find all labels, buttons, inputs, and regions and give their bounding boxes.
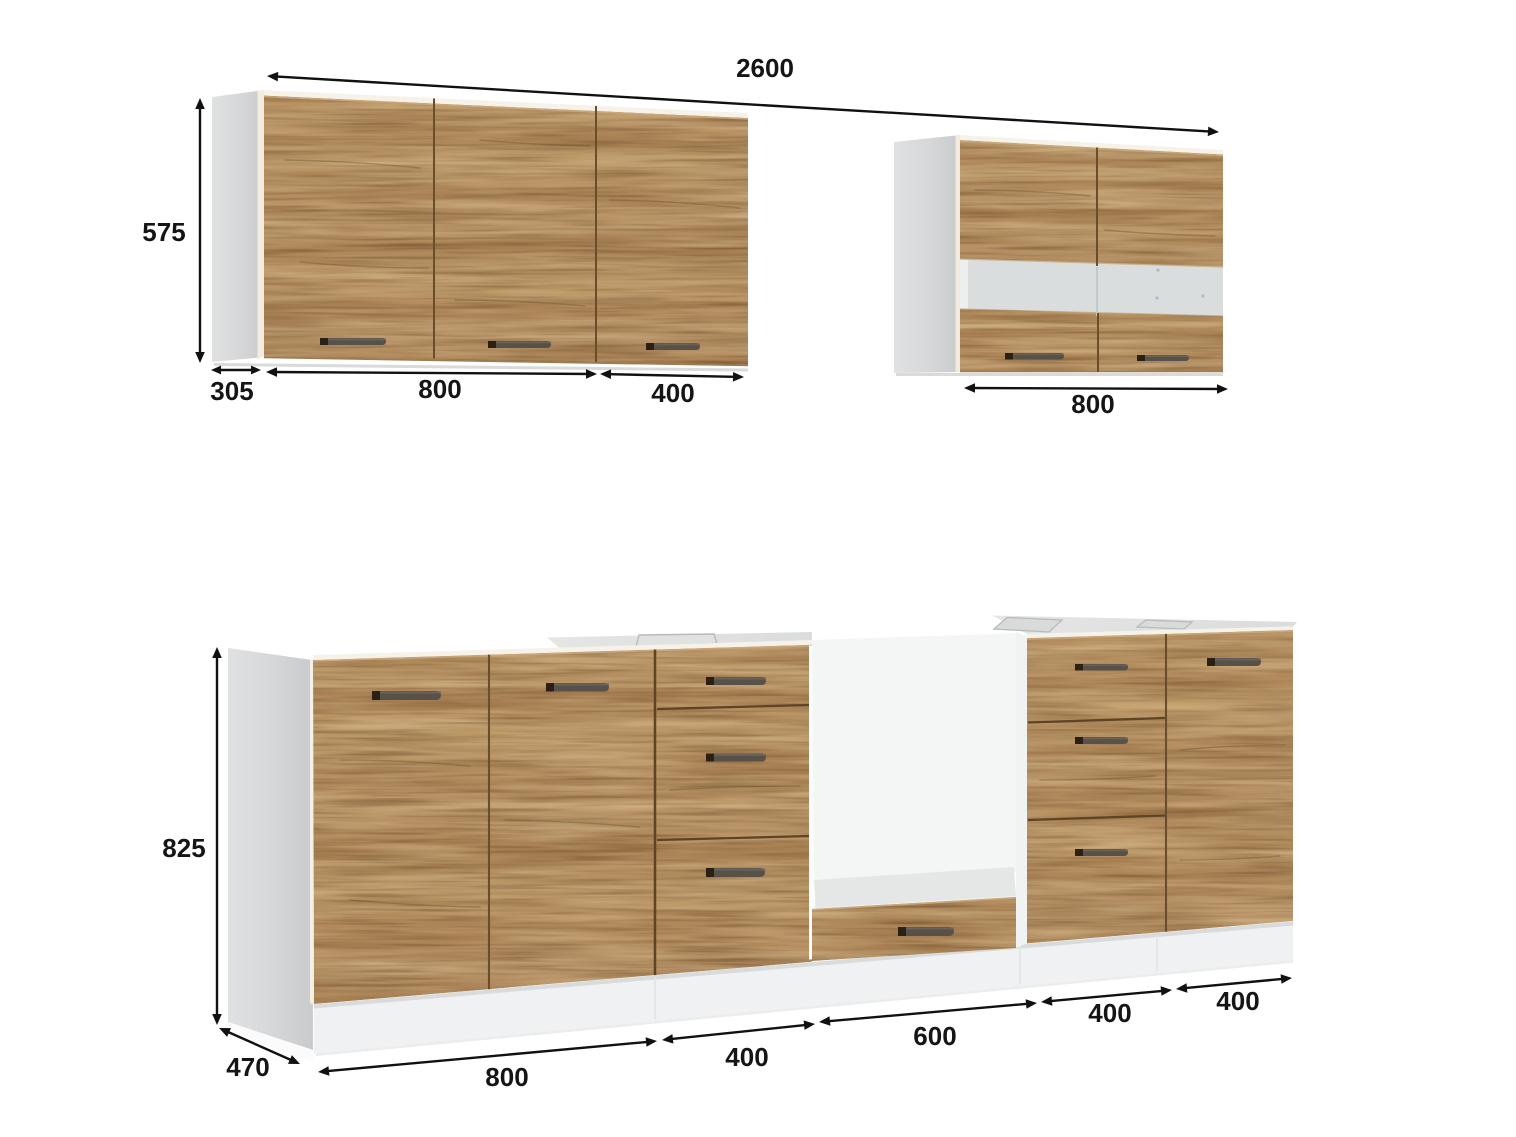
svg-text:825: 825 <box>162 833 205 863</box>
svg-text:575: 575 <box>142 217 185 247</box>
svg-text:400: 400 <box>725 1042 768 1072</box>
svg-text:400: 400 <box>1088 998 1131 1028</box>
svg-text:400: 400 <box>651 378 694 408</box>
svg-text:305: 305 <box>210 376 253 406</box>
svg-text:400: 400 <box>1216 986 1259 1016</box>
svg-text:800: 800 <box>418 374 461 404</box>
svg-text:800: 800 <box>485 1062 528 1092</box>
svg-text:800: 800 <box>1071 389 1114 419</box>
svg-text:2600: 2600 <box>736 53 794 83</box>
svg-text:470: 470 <box>226 1052 269 1082</box>
svg-text:600: 600 <box>913 1021 956 1051</box>
